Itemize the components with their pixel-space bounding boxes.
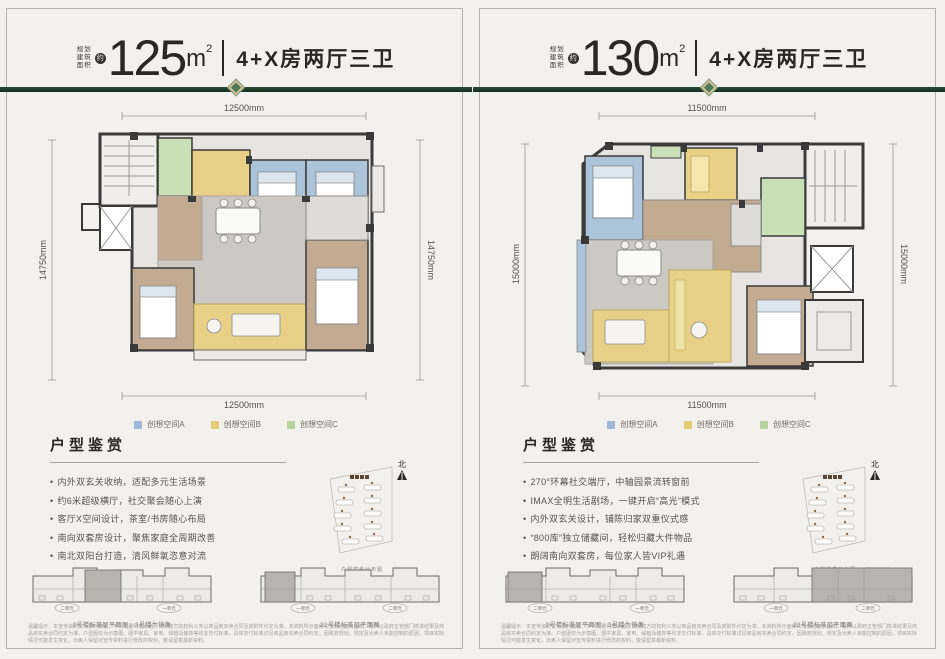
legend-swatch-yellow [211,421,219,429]
legend-item-b: 创想空间B [684,419,734,430]
bullet-item: •“800库”独立储藏间，轻松归藏大件物品 [523,529,769,548]
plate-building-22: 一单元 二单元 22号楼标准层平面图 [250,556,450,629]
building-footprints [334,475,383,544]
legend-item-a: 创想空间A [134,419,184,430]
site-minimap-drawing: 北 [308,455,416,559]
unit-label: 一单元 [635,605,649,612]
legend-swatch-green [760,421,768,429]
dim-bottom: 11500mm [687,400,726,410]
dim-right: 15000mm [899,244,909,284]
legend-130: 创想空间A 创想空间B 创想空间C [473,419,945,430]
compass-north-label: 北 [398,460,406,469]
dim-right: 14750mm [426,240,436,280]
bullet-item: •客厅X空间设计，茶室/书房随心布局 [50,510,296,529]
area-value: 130 [581,33,658,83]
area-label: 规划 建筑 面积 [77,46,92,70]
bullet-item: •约6米超级横厅，社交聚会随心上演 [50,492,296,511]
header-divider [222,40,224,76]
header-125: 规划 建筑 面积 约 125 m2 4+X房两厅三卫 [0,30,472,86]
building-footprints [807,475,856,544]
section-underline [523,462,759,463]
legend-item-c: 创想空间C [287,419,338,430]
header-divider [695,40,697,76]
unit-label: 二单元 [861,605,875,612]
legend-swatch-blue [134,421,142,429]
compass-north-label: 北 [871,460,879,469]
approx-badge: 约 [568,53,579,64]
bullet-item: •IMAX全明生活剧场，一键开启“高光”模式 [523,492,769,511]
disclaimer-text: 温馨提示：本宣传资料仅为要约邀请，不构成要约或承诺，买卖双方的权利义务以商品房买… [28,624,444,645]
site-minimap-drawing: 北 [781,455,889,559]
layout-type-text: 4+X房两厅三卫 [236,43,395,73]
floor-plan-125: 12500mm 12500mm 14750mm 14750mm [36,100,436,412]
plate-drawing: 二单元 一单元 [27,556,217,614]
legend-item-c: 创想空间C [760,419,811,430]
legend-swatch-yellow [684,421,692,429]
plate-building-2: 二单元 一单元 2号楼标准层平面图，3号楼为镜像 [22,556,222,629]
dim-top: 12500mm [224,103,264,113]
building-plates-130: 二单元 一单元 2号楼标准层平面图，3号楼为镜像 [495,556,923,629]
unit-label: 一单元 [769,605,783,612]
unit-label: 二单元 [60,605,74,612]
plate-building-22: 一单元 二单元 22号楼标准层平面图 [723,556,923,629]
panel-130: 规划 建筑 面积 约 130 m2 4+X房两厅三卫 11500mm 11500… [473,0,945,659]
bullet-item: •内外双玄关设计，铺陈归家双重仪式感 [523,510,769,529]
header-130: 规划 建筑 面积 约 130 m2 4+X房两厅三卫 [473,30,945,86]
legend-item-a: 创想空间A [607,419,657,430]
plate-drawing: 一单元 二单元 [255,556,445,614]
dim-bottom: 12500mm [224,400,264,410]
legend-swatch-green [287,421,295,429]
section-title: 户型鉴赏 [523,434,769,455]
approx-badge: 约 [95,53,106,64]
plate-drawing: 二单元 一单元 [500,556,690,614]
bullet-item: •南向双套房设计，聚焦家庭全周期改善 [50,529,296,548]
feature-bullets: •270°环幕社交端厅，中轴园景流转窗前 •IMAX全明生活剧场，一键开启“高光… [523,473,769,566]
plate-drawing: 一单元 二单元 [728,556,918,614]
legend-swatch-blue [607,421,615,429]
dim-left: 15000mm [511,244,521,284]
panel-125: 规划 建筑 面积 约 125 m2 4+X房两厅三卫 12500mm 12500… [0,0,472,659]
floor-plan-130: 11500mm 11500mm 15000mm 15000mm [509,100,909,412]
floorplan-poster: 规划 建筑 面积 约 125 m2 4+X房两厅三卫 12500mm 12500… [0,0,945,659]
appreciation-section-125: 户型鉴赏 •内外双玄关收纳，适配多元生活场景 •约6米超级横厅，社交聚会随心上演… [50,434,296,566]
plate-building-2: 二单元 一单元 2号楼标准层平面图，3号楼为镜像 [495,556,695,629]
dim-top: 11500mm [687,103,726,113]
unit-label: 二单元 [533,605,547,612]
disclaimer-text: 温馨提示：本宣传资料仅为要约邀请，不构成要约或承诺，买卖双方的权利义务以商品房买… [501,624,917,645]
area-unit: m2 [186,43,212,73]
appreciation-section-130: 户型鉴赏 •270°环幕社交端厅，中轴园景流转窗前 •IMAX全明生活剧场，一键… [523,434,769,566]
section-title: 户型鉴赏 [50,434,296,455]
legend-item-b: 创想空间B [211,419,261,430]
bullet-item: •270°环幕社交端厅，中轴园景流转窗前 [523,473,769,492]
building-plates-125: 二单元 一单元 2号楼标准层平面图，3号楼为镜像 [22,556,450,629]
layout-type-text: 4+X房两厅三卫 [709,43,868,73]
legend-125: 创想空间A 创想空间B 创想空间C [0,419,472,430]
feature-bullets: •内外双玄关收纳，适配多元生活场景 •约6米超级横厅，社交聚会随心上演 •客厅X… [50,473,296,566]
area-label: 规划 建筑 面积 [550,46,565,70]
area-unit: m2 [659,43,685,73]
area-value: 125 [108,33,185,83]
section-underline [50,462,286,463]
dim-left: 14750mm [38,240,48,280]
bullet-item: •内外双玄关收纳，适配多元生活场景 [50,473,296,492]
unit-label: 一单元 [162,605,176,612]
unit-label: 一单元 [296,605,310,612]
unit-label: 二单元 [388,605,402,612]
